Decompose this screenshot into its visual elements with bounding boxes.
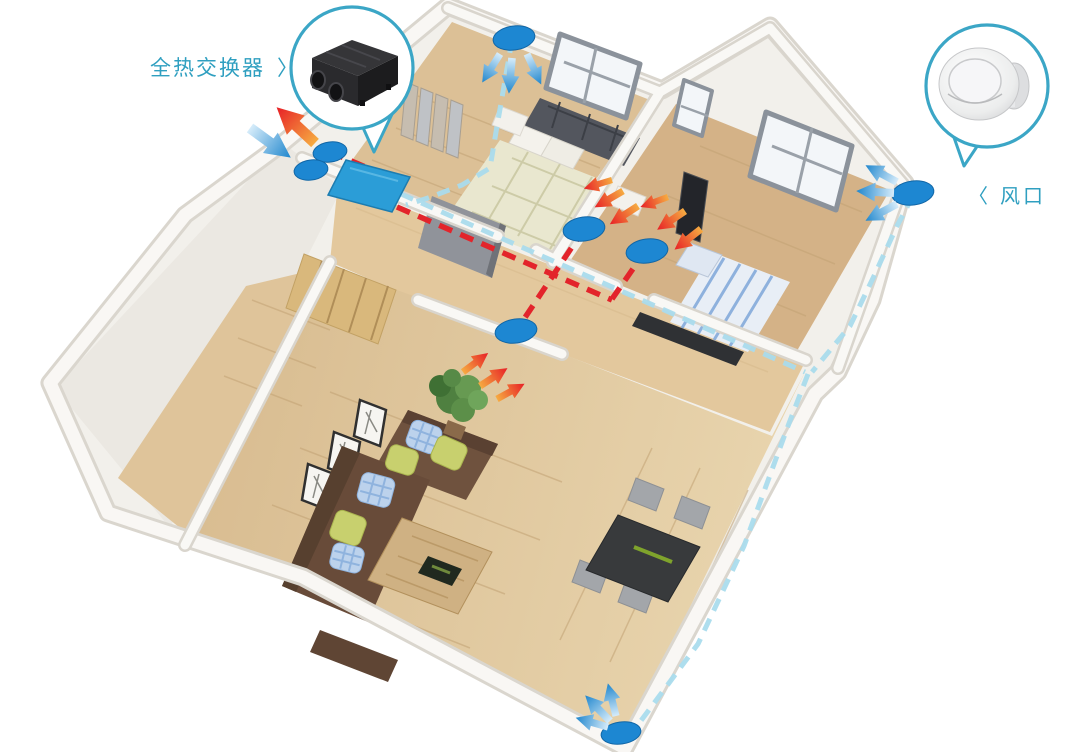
heat-exchanger-label: 全热交换器 〉 [150, 52, 300, 82]
air-vent-label: 〈 风口 [968, 180, 1046, 209]
air-vent-label-text: 风口 [1000, 180, 1046, 209]
pointer-left-icon: 〈 [968, 180, 991, 209]
apartment-ventilation-illustration: 全热交换器 〉 〈 风口 [0, 0, 1074, 752]
floorplan-canvas [0, 0, 1074, 752]
heat-exchanger-label-text: 全热交换器 [150, 52, 265, 82]
pointer-right-icon: 〉 [277, 52, 300, 82]
callout-bubble-air-vent [926, 25, 1048, 166]
